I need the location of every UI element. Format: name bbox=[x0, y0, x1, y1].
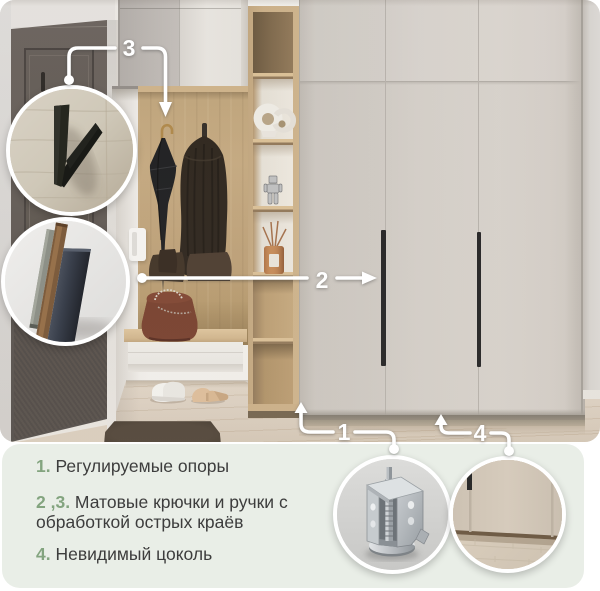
svg-text:3: 3 bbox=[123, 35, 136, 61]
svg-text:1: 1 bbox=[338, 419, 351, 445]
svg-text:4: 4 bbox=[474, 420, 487, 446]
svg-text:2: 2 bbox=[316, 267, 329, 293]
